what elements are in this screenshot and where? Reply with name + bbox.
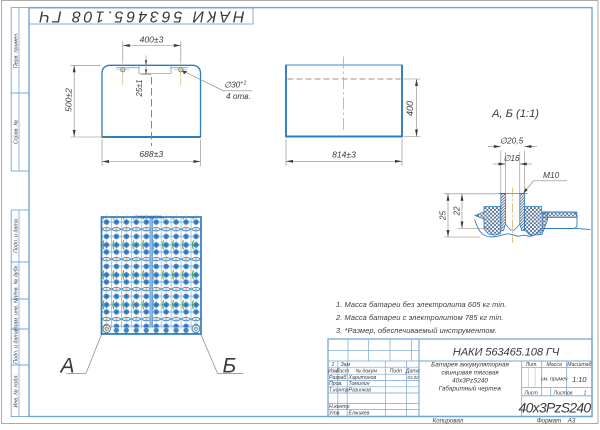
svg-text:Дата: Дата [405, 368, 420, 374]
svg-text:1:10: 1:10 [572, 375, 587, 384]
svg-text:∅20,5: ∅20,5 [500, 136, 524, 146]
svg-text:НАКИ 563465.108 ГЧ: НАКИ 563465.108 ГЧ [36, 8, 244, 25]
svg-text:814±3: 814±3 [332, 150, 356, 160]
svg-text:Разраб: Разраб [329, 375, 347, 381]
svg-text:М10: М10 [543, 170, 560, 180]
svg-text:Батарея аккумуляторная: Батарея аккумуляторная [431, 362, 509, 369]
svg-text:Зам: Зам [341, 362, 351, 368]
svg-text:4 отв.: 4 отв. [226, 92, 251, 101]
svg-text:Инв. № подл.: Инв. № подл. [13, 374, 19, 407]
svg-text:Формат: Формат [537, 417, 562, 424]
svg-text:22: 22 [453, 206, 462, 217]
svg-text:2. Масса батареи с электролито: 2. Масса батареи с электролитом 785 кг m… [335, 313, 504, 322]
svg-text:Лист: Лист [335, 368, 350, 374]
svg-text:Листов: Листов [553, 390, 573, 396]
svg-text:Н.контр: Н.контр [329, 404, 350, 410]
svg-text:40х3PzS240: 40х3PzS240 [519, 399, 592, 415]
svg-text:1: 1 [584, 390, 587, 396]
svg-text:40х3PzS240: 40х3PzS240 [452, 378, 488, 385]
svg-text:Подп. и дата: Подп. и дата [13, 219, 19, 253]
svg-text:Томилин: Томилин [349, 381, 370, 387]
svg-text:400: 400 [405, 101, 415, 116]
svg-text:500±2: 500±2 [63, 88, 73, 112]
svg-text:1: 1 [332, 362, 335, 368]
svg-text:Взам. инв. №: Взам. инв. № [13, 297, 19, 331]
svg-text:Подп. и дата: Подп. и дата [13, 330, 19, 364]
svg-text:688±3: 688±3 [139, 149, 163, 159]
svg-text:Пров.: Пров. [329, 381, 343, 387]
svg-text:3. *Размер, обеспечиваемый инс: 3. *Размер, обеспечиваемый инструментом. [336, 326, 497, 335]
svg-text:Масса: Масса [547, 362, 562, 368]
svg-text:Инв. № дубл.: Инв. № дубл. [13, 264, 19, 297]
svg-text:∅16: ∅16 [503, 154, 520, 163]
svg-text:Лит.: Лит. [525, 362, 538, 368]
svg-text:Подп: Подп [390, 368, 403, 374]
svg-text:см. примеч: см. примеч [541, 377, 568, 383]
svg-text:Масштаб: Масштаб [567, 362, 592, 368]
svg-text:Лист: Лист [523, 390, 538, 396]
svg-text:1. Масса батареи без электроли: 1. Масса батареи без электролита 605 кг … [336, 300, 507, 309]
svg-text:400±3: 400±3 [140, 34, 164, 44]
svg-text:25±1: 25±1 [135, 79, 144, 97]
svg-text:Б: Б [223, 354, 237, 377]
svg-text:А: А [59, 354, 75, 377]
svg-text:Копировал: Копировал [433, 417, 464, 424]
svg-text:03.02: 03.02 [408, 375, 420, 380]
svg-text:Елжикев: Елжикев [349, 410, 370, 416]
svg-text:Разинков: Разинков [349, 388, 372, 394]
svg-text:Харитонов: Харитонов [348, 375, 377, 381]
svg-text:свинцовая тяговая: свинцовая тяговая [441, 370, 499, 377]
svg-text:Габаритный чертеж: Габаритный чертеж [439, 385, 502, 393]
svg-text:НАКИ 563465.108 ГЧ: НАКИ 563465.108 ГЧ [453, 346, 560, 358]
svg-text:Справ. №: Справ. № [13, 120, 19, 145]
svg-text:А3: А3 [567, 417, 576, 424]
svg-text:Перв. примен.: Перв. примен. [13, 32, 19, 68]
svg-text:А, Б (1:1): А, Б (1:1) [491, 108, 539, 120]
svg-text:№ докум: № докум [355, 368, 377, 374]
svg-text:Утв.: Утв. [329, 410, 341, 416]
svg-text:Т.контр: Т.контр [329, 388, 349, 394]
svg-text:25: 25 [439, 211, 448, 222]
